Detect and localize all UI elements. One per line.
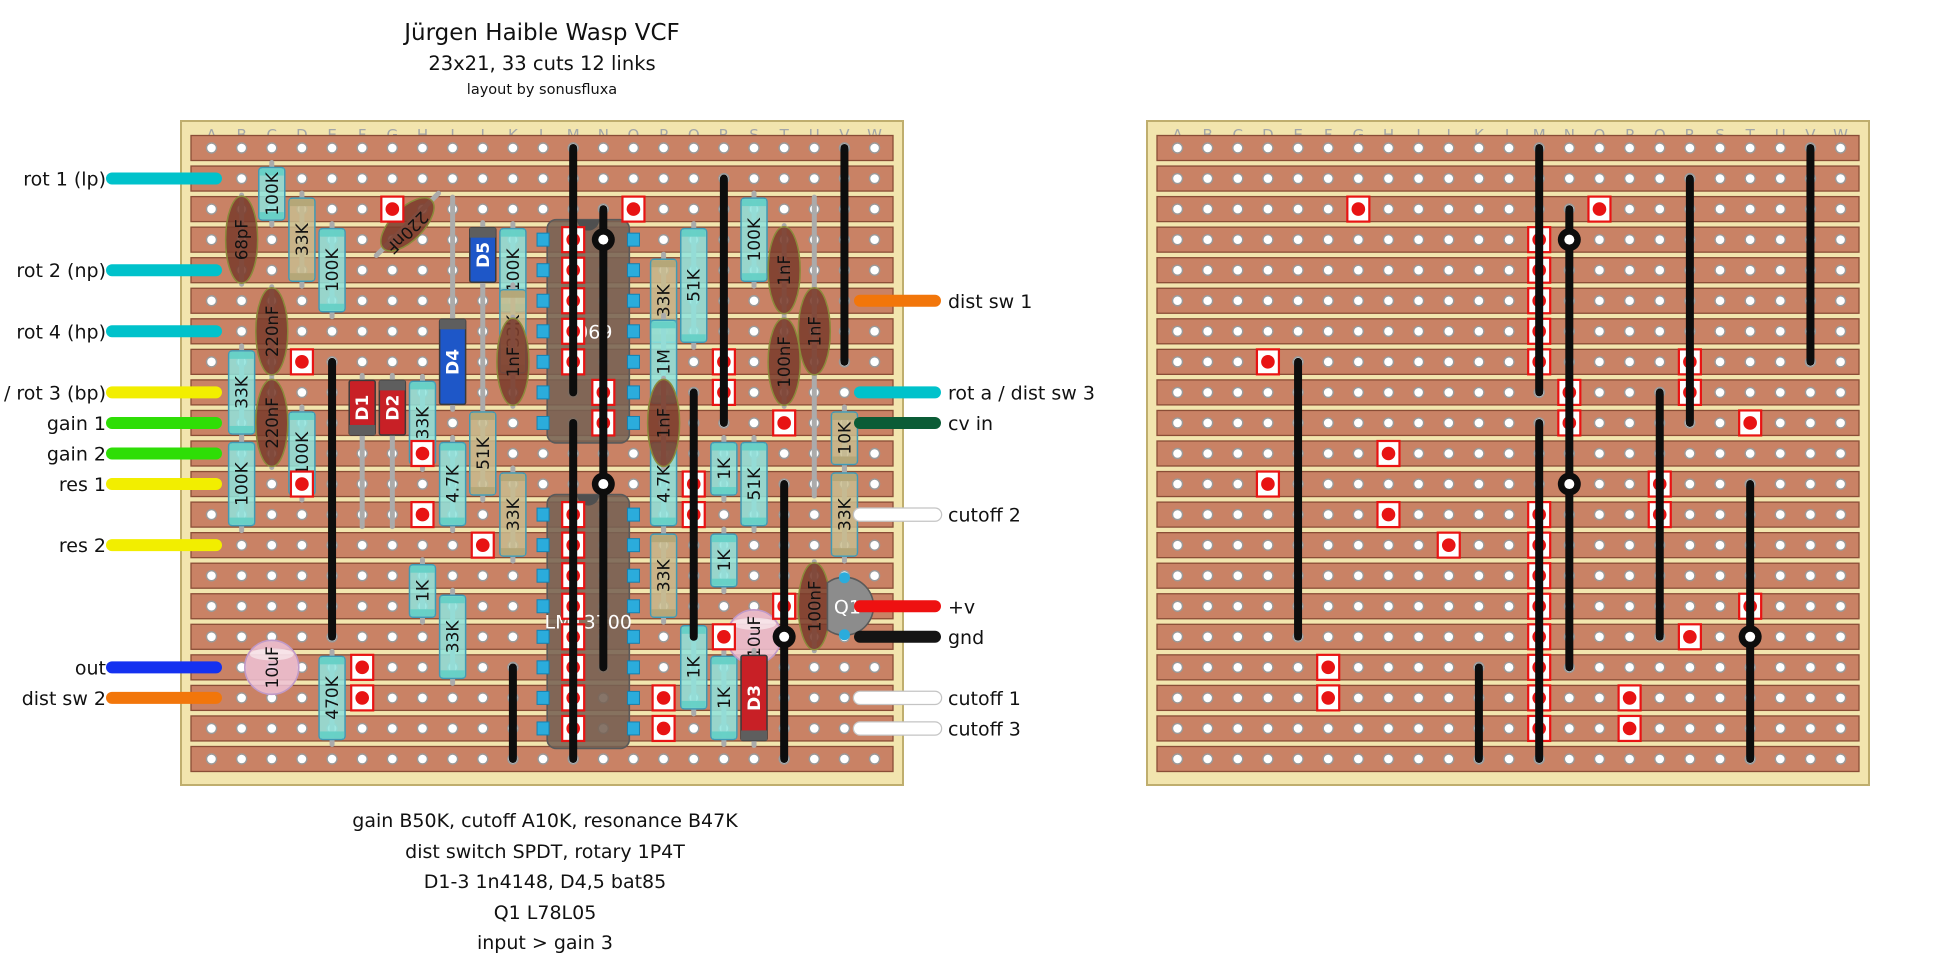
resistor-value: 51K xyxy=(474,436,494,470)
capacitor-value: 220nF xyxy=(263,306,282,357)
diode-band xyxy=(440,319,466,329)
wire-label-out: out xyxy=(75,657,106,679)
resistor-band xyxy=(441,596,465,603)
resistor-value: 1M xyxy=(655,349,675,374)
trace-cut xyxy=(1317,685,1339,710)
capacitor-value: 1nF xyxy=(805,316,824,346)
resistor-band xyxy=(682,230,706,237)
ic-pin xyxy=(627,416,639,429)
wire-label-cutoff-3: cutoff 3 xyxy=(948,718,1021,740)
trace-cut xyxy=(1317,655,1339,680)
resistor-value: 51K xyxy=(745,467,765,501)
resistor-value: 1K xyxy=(715,457,735,480)
trace-cut xyxy=(653,685,675,710)
resistor-band xyxy=(652,518,676,525)
trace-cut xyxy=(1619,716,1641,741)
resistor-band xyxy=(712,657,736,664)
ic-4069: 4069 xyxy=(537,220,639,443)
resistor-51k-S: 51K xyxy=(741,438,767,531)
capacitor-value: 220nF xyxy=(263,397,282,448)
capacitor-value: 100nF xyxy=(805,581,824,632)
wire-label-dist-sw-2: dist sw 2 xyxy=(22,688,106,710)
resistor-band xyxy=(712,579,736,586)
resistor-band xyxy=(230,352,254,359)
wire-label-res-1: res 1 xyxy=(59,474,106,496)
ic-pin xyxy=(627,386,639,399)
resistor-band xyxy=(320,230,344,237)
electrolytic-value: 10uF xyxy=(263,646,283,688)
trace-cut xyxy=(1347,197,1369,222)
resistor-band xyxy=(832,474,856,481)
ic-pin xyxy=(627,569,639,582)
diode-d2: D2 xyxy=(379,375,405,440)
electrolytic-10uf-C: 10uF xyxy=(245,640,299,694)
resistor-band xyxy=(320,304,344,311)
capacitor-1nf-U: 1nF xyxy=(798,287,830,376)
resistor-4-7k-I: 4.7K xyxy=(440,438,466,531)
resistor-band xyxy=(320,731,344,738)
ic-pin xyxy=(537,355,549,368)
resistor-band xyxy=(410,609,434,616)
trace-cut xyxy=(381,197,403,222)
diode-band xyxy=(379,380,405,390)
resistor-1k-H: 1K xyxy=(409,560,435,623)
wire-label-res-3-rot-3-bp: res 3 / rot 3 (bp) xyxy=(0,382,106,404)
diode-band xyxy=(741,730,767,740)
ic-pin xyxy=(627,264,639,277)
resistor-band xyxy=(501,230,525,237)
wire-label-cutoff-1: cutoff 1 xyxy=(948,688,1021,710)
wire-label-gain-1: gain 1 xyxy=(47,413,106,435)
resistor-band xyxy=(682,701,706,708)
resistor-value: 33K xyxy=(233,375,253,409)
resistor-band xyxy=(471,487,495,494)
resistor-100k-S: 100K xyxy=(741,193,767,286)
resistor-band xyxy=(652,609,676,616)
resistor-band xyxy=(712,535,736,542)
ic-pin xyxy=(537,508,549,521)
capacitor-value: 1nF xyxy=(655,408,674,438)
diode-band xyxy=(470,228,496,238)
page-title: Jürgen Haible Wasp VCF xyxy=(242,20,842,46)
resistor-band xyxy=(501,548,525,555)
ic-pin xyxy=(537,569,549,582)
resistor-band xyxy=(471,413,495,420)
trace-cut xyxy=(1257,349,1279,374)
capacitor-68pf-B: 68pF xyxy=(226,195,258,284)
resistor-10k-V: 10K xyxy=(831,407,857,470)
resistor-100k-C: 100K xyxy=(259,163,285,226)
resistor-band xyxy=(230,426,254,433)
resistor-33k-D: 33K xyxy=(289,193,315,286)
resistor-band xyxy=(441,670,465,677)
ic-name: LM13700 xyxy=(545,612,632,634)
trace-cut xyxy=(472,533,494,558)
resistor-band xyxy=(441,444,465,451)
trace-cut xyxy=(1679,624,1701,649)
resistor-band xyxy=(652,321,676,328)
resistor-value: 1K xyxy=(715,549,735,572)
wire-label-rot-2-np: rot 2 (np) xyxy=(16,260,106,282)
capacitor-1nf-P: 1nF xyxy=(648,378,680,467)
wire-label-gnd: gnd xyxy=(948,627,984,649)
resistor-value: 100K xyxy=(233,461,253,505)
resistor-value: 100K xyxy=(293,431,313,475)
trace-cut xyxy=(1438,533,1460,558)
capacitor-220nf-C: 220nF xyxy=(256,287,288,376)
transistor-pin xyxy=(839,572,850,583)
wire-label-cutoff-2: cutoff 2 xyxy=(948,505,1021,527)
ic-pin xyxy=(537,722,549,735)
resistor-value: 33K xyxy=(655,558,675,592)
resistor-value: 33K xyxy=(293,222,313,256)
capacitor-value: 68pF xyxy=(233,219,252,260)
trace-cut xyxy=(1377,441,1399,466)
trace-cut xyxy=(351,655,373,680)
resistor-band xyxy=(290,199,314,206)
diode-name: D1 xyxy=(353,395,373,421)
note-pots: gain B50K, cutoff A10K, resonance B47K xyxy=(245,806,845,837)
capacitor-1nf-K: 1nF xyxy=(497,317,529,406)
resistor-band xyxy=(652,535,676,542)
ic-pin xyxy=(537,264,549,277)
resistor-band xyxy=(230,518,254,525)
resistor-470k-E: 470K xyxy=(319,651,345,744)
resistor-band xyxy=(410,382,434,389)
resistor-100k-B: 100K xyxy=(229,438,255,531)
ic-pin xyxy=(537,325,549,338)
resistor-band xyxy=(832,548,856,555)
wire-label-rot-1-lp: rot 1 (lp) xyxy=(23,169,106,191)
resistor-1k-R: 1K xyxy=(711,438,737,501)
resistor-value: 33K xyxy=(444,620,464,654)
diode-name: D3 xyxy=(745,685,765,711)
resistor-1k-R: 1K xyxy=(711,651,737,744)
resistor-value: 33K xyxy=(835,497,855,531)
resistor-band xyxy=(742,444,766,451)
trace-cut xyxy=(291,349,313,374)
wire-label-res-2: res 2 xyxy=(59,535,106,557)
ic-pin xyxy=(627,661,639,674)
trace-cut xyxy=(773,410,795,435)
right-board: ABCDEFGHIJKLMNOPQRSTUVWABCDEFGHIJKLMNOPQ… xyxy=(1147,121,1869,785)
resistor-value: 100K xyxy=(745,217,765,261)
diode-d5: D5 xyxy=(470,223,496,288)
page-credit: layout by sonusfluxa xyxy=(242,82,842,98)
resistor-band xyxy=(832,457,856,464)
wire-label-rot-4-hp: rot 4 (hp) xyxy=(16,321,106,343)
diode-name: D4 xyxy=(444,349,464,375)
resistor-band xyxy=(742,518,766,525)
footer-notes: gain B50K, cutoff A10K, resonance B47K d… xyxy=(245,806,845,959)
resistor-band xyxy=(410,566,434,573)
resistor-value: 33K xyxy=(413,406,433,440)
wasp-vcf-stripboard-layout: ABCDEFGHIJKLMNOPQRSTUVWABCDEFGHIJKLMNOPQ… xyxy=(0,0,1949,974)
resistor-band xyxy=(652,260,676,267)
trace-cut xyxy=(713,624,735,649)
resistor-value: 1K xyxy=(413,579,433,602)
resistor-value: 1K xyxy=(715,686,735,709)
resistor-band xyxy=(682,334,706,341)
resistor-band xyxy=(230,444,254,451)
resistor-band xyxy=(712,731,736,738)
trace-cut xyxy=(1619,685,1641,710)
ic-pin xyxy=(537,386,549,399)
resistor-value: 33K xyxy=(655,284,675,318)
trace-cut xyxy=(653,716,675,741)
resistor-33k-P: 33K xyxy=(651,529,677,622)
resistor-band xyxy=(441,518,465,525)
trace-cut xyxy=(291,472,313,497)
capacitor-value: 1nF xyxy=(504,347,523,377)
resistor-band xyxy=(290,413,314,420)
wire-label-dist-sw-1: dist sw 1 xyxy=(948,291,1032,313)
ic-pin xyxy=(537,661,549,674)
ic-pin xyxy=(537,294,549,307)
diode-name: D5 xyxy=(474,242,494,268)
transistor-pin xyxy=(839,629,850,640)
resistor-value: 470K xyxy=(323,675,343,719)
capacitor-1nf-T: 1nF xyxy=(768,226,800,315)
note-q1: Q1 L78L05 xyxy=(245,898,845,929)
ic-pin xyxy=(627,325,639,338)
resistor-value: 51K xyxy=(685,268,705,302)
trace-cut xyxy=(622,197,644,222)
capacitor-value: 100nF xyxy=(775,336,794,387)
wire-label-gain-2: gain 2 xyxy=(47,444,106,466)
resistor-band xyxy=(742,273,766,280)
resistor-51k-Q: 51K xyxy=(681,224,707,348)
trace-cut xyxy=(1257,472,1279,497)
trace-cut xyxy=(1377,502,1399,527)
diode-name: D2 xyxy=(383,395,403,421)
resistor-band xyxy=(712,444,736,451)
note-switches: dist switch SPDT, rotary 1P4T xyxy=(245,837,845,868)
diode-d1: D1 xyxy=(349,375,375,440)
resistor-51k-J: 51K xyxy=(470,407,496,500)
note-input: input > gain 3 xyxy=(245,928,845,959)
ic-pin xyxy=(537,233,549,246)
trace-cut xyxy=(411,502,433,527)
trace-cut xyxy=(1739,410,1761,435)
resistor-band xyxy=(320,657,344,664)
resistor-33k-I: 33K xyxy=(440,590,466,683)
ic-pin xyxy=(537,691,549,704)
resistor-band xyxy=(501,474,525,481)
ic-pin xyxy=(627,233,639,246)
resistor-band xyxy=(712,487,736,494)
trace-cut xyxy=(1588,197,1610,222)
resistor-value: 4.7K xyxy=(655,464,675,503)
capacitor-value: 1nF xyxy=(775,255,794,285)
trace-cut xyxy=(351,685,373,710)
resistor-value: 100K xyxy=(263,171,283,215)
page-subtitle: 23x21, 33 cuts 12 links xyxy=(242,52,842,75)
diode-band xyxy=(349,425,375,435)
resistor-band xyxy=(290,273,314,280)
resistor-1k-R: 1K xyxy=(711,529,737,592)
resistor-value: 4.7K xyxy=(444,464,464,503)
resistor-band xyxy=(832,413,856,420)
resistor-33k-B: 33K xyxy=(229,346,255,439)
ic-pin xyxy=(537,416,549,429)
diode-d4: D4 xyxy=(440,314,466,409)
left-board: ABCDEFGHIJKLMNOPQRSTUVWABCDEFGHIJKLMNOPQ… xyxy=(0,121,1095,785)
trace-cut xyxy=(411,441,433,466)
wire-label-rot-a-dist-sw-3: rot a / dist sw 3 xyxy=(948,382,1095,404)
ic-pin xyxy=(537,539,549,552)
resistor-100k-E: 100K xyxy=(319,224,345,317)
ic-pin xyxy=(627,355,639,368)
wire-label-v: +v xyxy=(948,596,975,618)
resistor-value: 1K xyxy=(685,656,705,679)
resistor-value: 100K xyxy=(323,248,343,292)
capacitor-100nf-T: 100nF xyxy=(768,317,800,406)
ic-pin xyxy=(627,722,639,735)
ic-pin xyxy=(627,539,639,552)
diode-d3: D3 xyxy=(741,650,767,745)
wire-label-cv-in: cv in xyxy=(948,413,993,435)
ic-pin xyxy=(627,508,639,521)
resistor-band xyxy=(742,199,766,206)
note-diodes: D1-3 1n4148, D4,5 bat85 xyxy=(245,867,845,898)
resistor-33k-K: 33K xyxy=(500,468,526,561)
resistor-value: 10K xyxy=(835,421,855,455)
ic-pin xyxy=(627,691,639,704)
ic-pin xyxy=(627,294,639,307)
ic-lm13700: LM13700 xyxy=(537,495,639,749)
capacitor-220nf-C: 220nF xyxy=(256,378,288,467)
resistor-value: 33K xyxy=(504,497,524,531)
resistor-band xyxy=(501,291,525,298)
capacitor-100nf-U: 100nF xyxy=(798,562,830,651)
